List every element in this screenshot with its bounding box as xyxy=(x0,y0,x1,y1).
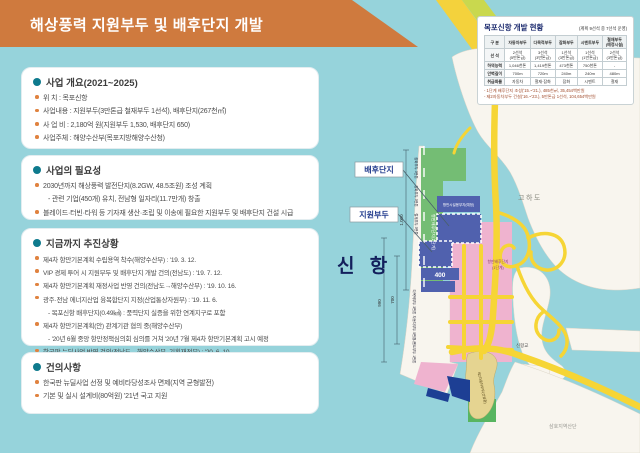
list-item: 제4차 항만기본계획 수립용역 착수(해양수산부) : '19. 3. 12. xyxy=(33,254,307,264)
zone-label-pink: (1단계) xyxy=(492,265,504,270)
table-row: 취급화물 자동차철재·잡화 잡화시멘트 철재 xyxy=(485,78,627,86)
table-header-row: 구 분 자동차부두 다목적부두 잡화부두 시멘트부두 철재부두 (예정시설) xyxy=(485,36,627,49)
list-item: 블레이드·터빈·타워 등 기자재 생산·조립 및 이송에 필요한 지원부두 및 … xyxy=(33,208,307,218)
section-bullet-icon xyxy=(33,78,41,86)
list-item: 사 업 비 : 2,180억 원(지원부두 1,530, 배후단지 650) xyxy=(33,120,307,130)
berth-label: 자동차부두 5만톤 xyxy=(412,316,417,341)
zone-berth-lower xyxy=(421,281,455,292)
callout-label-wharf: 지원부두 xyxy=(359,210,389,220)
zone-label-400: 400 xyxy=(435,272,446,279)
bullet-icon xyxy=(35,269,39,273)
list-item: 2030년까지 해상풍력 발전단지(8.2GW, 48.5조원) 조성 계획 xyxy=(33,181,307,191)
card-footnote: - 1단계 배후단지 조성('15.~'21.), 485천㎡, 35,454백… xyxy=(484,88,627,93)
label-gohado: 고하도 xyxy=(518,193,542,202)
title-banner: 해상풍력 지원부두 및 배후단지 개발 xyxy=(0,0,418,47)
list-subitem: - 목포신항 배후단지(0.49㎢) : 풍력단지 실증을 위한 연계지구로 포… xyxy=(33,307,307,317)
list-item: 제4차 항만기본계획 재정사업 반영 건의(전남도→해양수산부) : '19. … xyxy=(33,280,307,290)
leaflet-page: 해상풍력 지원부두 및 배후단지 개발 사업 개요(2021~2025) 위 치… xyxy=(0,0,640,453)
table-row: 선 석 2선석 (5만톤급)3선석 (3만톤급) 1선석 (3만톤급)1선석 (… xyxy=(485,49,627,62)
list-item: 한국판 뉴딜사업 선정 및 예비타당성조사 면제(지역 균형발전) xyxy=(33,378,307,388)
dim-label: 700 xyxy=(390,296,395,304)
bullet-icon xyxy=(35,256,39,260)
list-item: 기본 및 실시 설계비(80억원) '21년 국고 지원 xyxy=(33,391,307,401)
bullet-icon xyxy=(35,183,39,187)
bullet-icon xyxy=(35,122,39,126)
list-item: 사업내용 : 지원부두(3만톤급 철재부두 1선석), 배후단지(267천㎡) xyxy=(33,106,307,116)
bullet-icon xyxy=(35,380,39,384)
card-note: (계획 9선석 중 7선석 운영) xyxy=(579,26,627,32)
berth-label: 잡화부두 3만톤 xyxy=(414,157,419,179)
list-item: 위 치 : 목포신항 xyxy=(33,93,307,103)
berth-label: 철재부두 3만톤 xyxy=(414,213,419,235)
section-bullet-icon xyxy=(33,363,41,371)
bullet-icon xyxy=(35,95,39,99)
section-bullet-icon xyxy=(33,239,41,247)
card-title: 목포신항 개발 현황 xyxy=(484,22,543,33)
zone-darkblue-berth xyxy=(447,376,470,402)
bullet-icon xyxy=(35,109,39,113)
port-status-card: 목포신항 개발 현황 (계획 9선석 중 7선석 운영) 구 분 자동차부두 다… xyxy=(477,16,634,105)
table-row: 하역능력 1,046천톤1,419천톤 473천톤750천톤 - xyxy=(485,62,627,70)
callout-label-hinterland: 배후단지 xyxy=(364,165,393,175)
list-item: 제4차 항만기본계획(안) 관계기관 협의 중(해양수산부) xyxy=(33,320,307,330)
berth-label: 시멘트부두 1만톤 xyxy=(412,339,417,364)
label-bridge: 신항교 xyxy=(516,342,528,348)
table-row: 안벽길이 700m720m 240m240m 480m xyxy=(485,70,627,78)
page-title: 해상풍력 지원부두 및 배후단지 개발 xyxy=(30,14,263,35)
zone-label-green: 항만배후단지(2단계) xyxy=(430,214,437,251)
info-box-necessity: 사업의 필요성 2030년까지 해상풍력 발전단지(8.2GW, 48.5조원)… xyxy=(21,155,319,220)
zone-label-pink: 항만배후단지 xyxy=(488,259,509,264)
list-subitem: - '20년 6월 중앙 항만정책심의회 심의를 거쳐 '20년 7월 제4차 … xyxy=(33,333,307,343)
bullet-icon xyxy=(35,322,39,326)
label-sinhang: 신 항 xyxy=(337,255,392,277)
bullet-icon xyxy=(35,210,39,214)
section-bullet-icon xyxy=(33,166,41,174)
list-item: 광주·전남 에너지산업 융복합단지 지정(산업통상자원부) : '19. 11.… xyxy=(33,294,307,304)
info-box-requests: 건의사항 한국판 뉴딜사업 선정 및 예비타당성조사 면제(지역 균형발전) 기… xyxy=(21,352,319,414)
info-box-overview: 사업 개요(2021~2025) 위 치 : 목포신항 사업내용 : 지원부두(… xyxy=(21,67,319,149)
land-island xyxy=(566,328,640,352)
list-item: VIP 경제 투어 시 지원부두 및 배후단지 개발 건의(전남도) : '19… xyxy=(33,267,307,277)
bullet-icon xyxy=(35,283,39,287)
port-status-table: 구 분 자동차부두 다목적부두 잡화부두 시멘트부두 철재부두 (예정시설) 선… xyxy=(484,35,627,86)
info-box-progress: 지금까지 추진상황 제4차 항만기본계획 수립용역 착수(해양수산부) : '1… xyxy=(21,228,319,346)
list-item: 사업주체 : 해양수산부(목포지방해양수산청) xyxy=(33,133,307,143)
label-samho: 삼호지역산단 xyxy=(549,423,577,430)
section-heading: 지금까지 추진상황 xyxy=(33,236,307,250)
bullet-icon xyxy=(35,296,39,300)
card-footnote: - 제2자동차부두 건설('16.~'23.), 5만톤급 1선석, 104,6… xyxy=(484,94,627,99)
bullet-icon xyxy=(35,394,39,398)
list-subitem: - 관련 기업(450개) 유치, 전남형 일자리(11.7만개) 창출 xyxy=(33,194,307,204)
zone-label-blue: 항만시설용부지(예정) xyxy=(443,202,474,207)
bullet-icon xyxy=(35,135,39,139)
berth-label: 다목적부두 3만톤 xyxy=(412,290,417,315)
section-heading: 건의사항 xyxy=(33,360,307,374)
section-heading: 사업의 필요성 xyxy=(33,163,307,177)
dim-label: 990 xyxy=(377,299,382,307)
section-heading: 사업 개요(2021~2025) xyxy=(33,75,307,89)
zone-project-hinterland xyxy=(437,214,481,243)
